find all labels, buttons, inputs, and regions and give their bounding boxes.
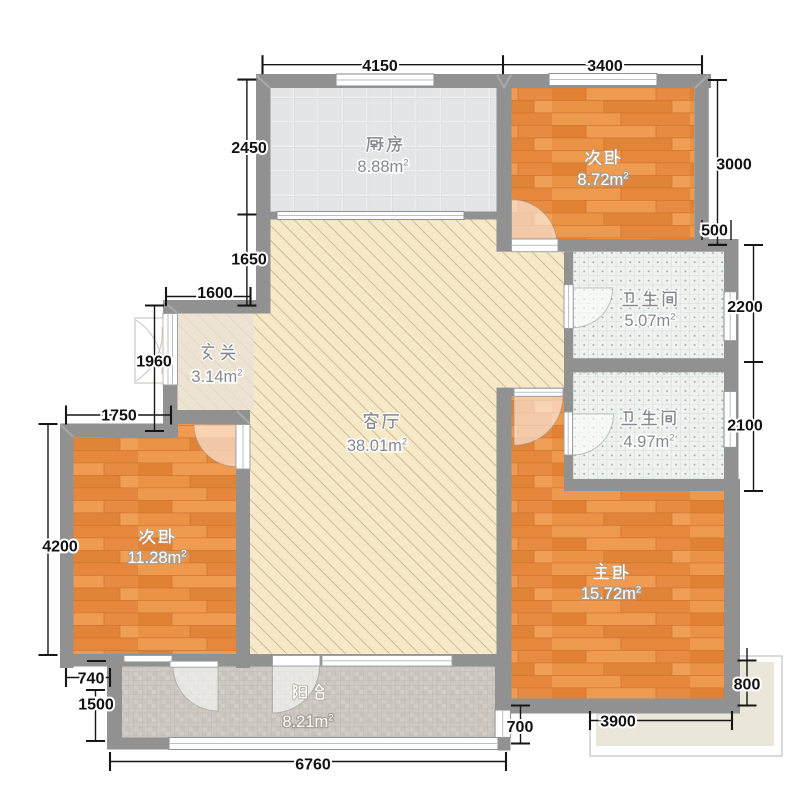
svg-text:2200: 2200 [727, 299, 763, 316]
svg-text:1960: 1960 [136, 354, 172, 371]
svg-text:8.88m2: 8.88m2 [357, 158, 408, 177]
svg-text:740: 740 [78, 671, 105, 688]
svg-text:1750: 1750 [101, 408, 137, 425]
svg-text:4150: 4150 [362, 58, 398, 75]
svg-text:4200: 4200 [42, 539, 78, 556]
svg-text:3400: 3400 [587, 58, 623, 75]
svg-text:1650: 1650 [231, 252, 267, 269]
svg-text:38.01m2: 38.01m2 [347, 437, 407, 456]
svg-text:15.72m2: 15.72m2 [581, 585, 641, 604]
svg-text:2100: 2100 [727, 418, 763, 435]
svg-text:700: 700 [507, 719, 534, 736]
svg-text:8.21m2: 8.21m2 [282, 713, 333, 732]
svg-text:3900: 3900 [600, 714, 636, 731]
svg-text:11.28m2: 11.28m2 [127, 549, 186, 568]
svg-text:4.97m2: 4.97m2 [623, 433, 674, 452]
svg-text:6760: 6760 [295, 757, 331, 774]
svg-text:2450: 2450 [231, 140, 267, 157]
svg-text:1600: 1600 [197, 285, 233, 302]
svg-text:5.07m2: 5.07m2 [624, 312, 675, 331]
svg-text:800: 800 [734, 677, 761, 694]
svg-text:8.72m2: 8.72m2 [577, 171, 628, 190]
svg-text:500: 500 [701, 223, 728, 240]
svg-text:3000: 3000 [716, 157, 752, 174]
svg-text:1500: 1500 [78, 697, 114, 714]
svg-text:3.14m2: 3.14m2 [191, 368, 242, 387]
